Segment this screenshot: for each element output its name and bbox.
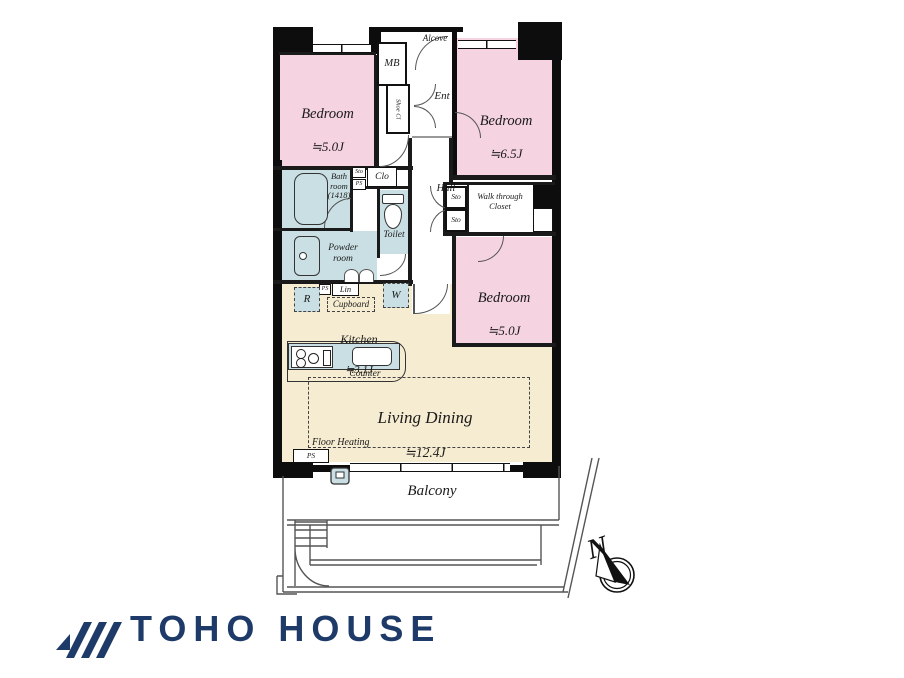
storage-lower: Sto bbox=[445, 209, 467, 232]
folding-door-powder-right bbox=[359, 269, 374, 282]
cupboard-space: Cupboard bbox=[327, 297, 375, 312]
walk-through-closet-label: Walk through Closet bbox=[468, 192, 532, 211]
pipe-space-lin-label: PS bbox=[322, 286, 329, 293]
wall-segment bbox=[369, 27, 463, 32]
evacuation-hatch bbox=[295, 520, 327, 548]
entrance-label: Ent bbox=[427, 90, 457, 102]
bedroom1-name: Bedroom bbox=[285, 106, 370, 122]
floor-plan-page: MB Shoe Cl Sto PS Clo Sto Sto PS Lin R W… bbox=[0, 0, 904, 678]
bedroom1-size: ≒5.0J bbox=[285, 140, 370, 155]
stove-burner bbox=[308, 353, 319, 364]
bathroom-label: Bath room (1418) bbox=[318, 172, 360, 201]
bedroom3-name: Bedroom bbox=[463, 290, 545, 306]
powder-room-label: Powder room bbox=[320, 243, 366, 264]
bedroom3-label: Bedroom ≒5.0J bbox=[463, 272, 545, 357]
meter-box: MB bbox=[377, 42, 407, 86]
linen-closet-label: Lin bbox=[340, 285, 351, 295]
toilet-tank bbox=[382, 194, 404, 204]
balcony-foot bbox=[277, 576, 297, 594]
shoe-closet-label: Shoe Cl bbox=[394, 99, 401, 119]
balcony-slant-inner bbox=[563, 458, 592, 592]
hall-label: Hall bbox=[429, 183, 463, 195]
logo-triangle bbox=[56, 634, 70, 650]
balcony-parapet-band1 bbox=[287, 520, 559, 525]
closet-nook bbox=[533, 208, 553, 232]
logo-text: TOHO HOUSE bbox=[130, 608, 441, 650]
wall-segment bbox=[552, 55, 561, 462]
bedroom3-size: ≒5.0J bbox=[463, 324, 545, 339]
meter-box-label: MB bbox=[384, 58, 399, 70]
storage-lower-label: Sto bbox=[451, 216, 461, 224]
balcony-parapet-band2 bbox=[310, 560, 541, 565]
stove-burner bbox=[296, 358, 306, 368]
washer-label: W bbox=[391, 289, 400, 301]
door-arc-shoe-closet-lower bbox=[414, 106, 436, 128]
window-bedroom1 bbox=[313, 44, 371, 53]
door-arc-toilet bbox=[380, 254, 406, 276]
balcony-and-compass-drawing: N bbox=[265, 452, 655, 612]
refrigerator-space: R bbox=[294, 287, 320, 312]
balcony-faucet-basin bbox=[336, 472, 344, 478]
wall-segment bbox=[452, 235, 456, 345]
counter-label: Counter bbox=[330, 369, 400, 380]
pipe-space-lin: PS bbox=[319, 284, 331, 295]
compass: N bbox=[582, 530, 634, 592]
closet: Clo bbox=[367, 167, 397, 187]
wall-segment bbox=[533, 184, 553, 208]
window-bedroom2 bbox=[458, 40, 516, 49]
wall-segment bbox=[273, 228, 353, 231]
powder-sink bbox=[294, 236, 320, 276]
refrigerator-label: R bbox=[304, 293, 311, 305]
balcony-slant-outer bbox=[568, 458, 599, 598]
balcony-partition-door-arc bbox=[295, 548, 329, 586]
bedroom1-label: Bedroom ≒5.0J bbox=[285, 88, 370, 173]
wall-segment bbox=[273, 160, 282, 462]
balcony-band-sides bbox=[310, 525, 541, 565]
door-arc-bedroom1 bbox=[380, 135, 409, 167]
shoe-closet: Shoe Cl bbox=[386, 84, 410, 134]
folding-door-powder-left bbox=[344, 269, 359, 282]
cupboard-label: Cupboard bbox=[333, 299, 369, 309]
wall-segment bbox=[408, 138, 412, 286]
bedroom2-size: ≒6.5J bbox=[465, 147, 547, 162]
alcove-label: Alcove bbox=[416, 33, 454, 43]
closet-label: Clo bbox=[375, 172, 389, 183]
floor-heating-label: Floor Heating bbox=[312, 437, 382, 448]
kitchen-name: Kitchen bbox=[326, 333, 392, 346]
bedroom2-name: Bedroom bbox=[465, 113, 547, 129]
wall-segment bbox=[377, 188, 380, 258]
living-name: Living Dining bbox=[350, 408, 500, 427]
bedroom2-label: Bedroom ≒6.5J bbox=[465, 95, 547, 180]
entrance-step-line bbox=[412, 136, 452, 138]
linen-closet: Lin bbox=[332, 283, 359, 296]
washer-space: W bbox=[383, 283, 409, 308]
toho-house-logo-mark bbox=[52, 598, 132, 668]
powder-sink-drain bbox=[299, 252, 307, 260]
kitchen-label: Kitchen ≒3.1J bbox=[326, 315, 392, 394]
toilet-label: Toilet bbox=[376, 230, 412, 241]
